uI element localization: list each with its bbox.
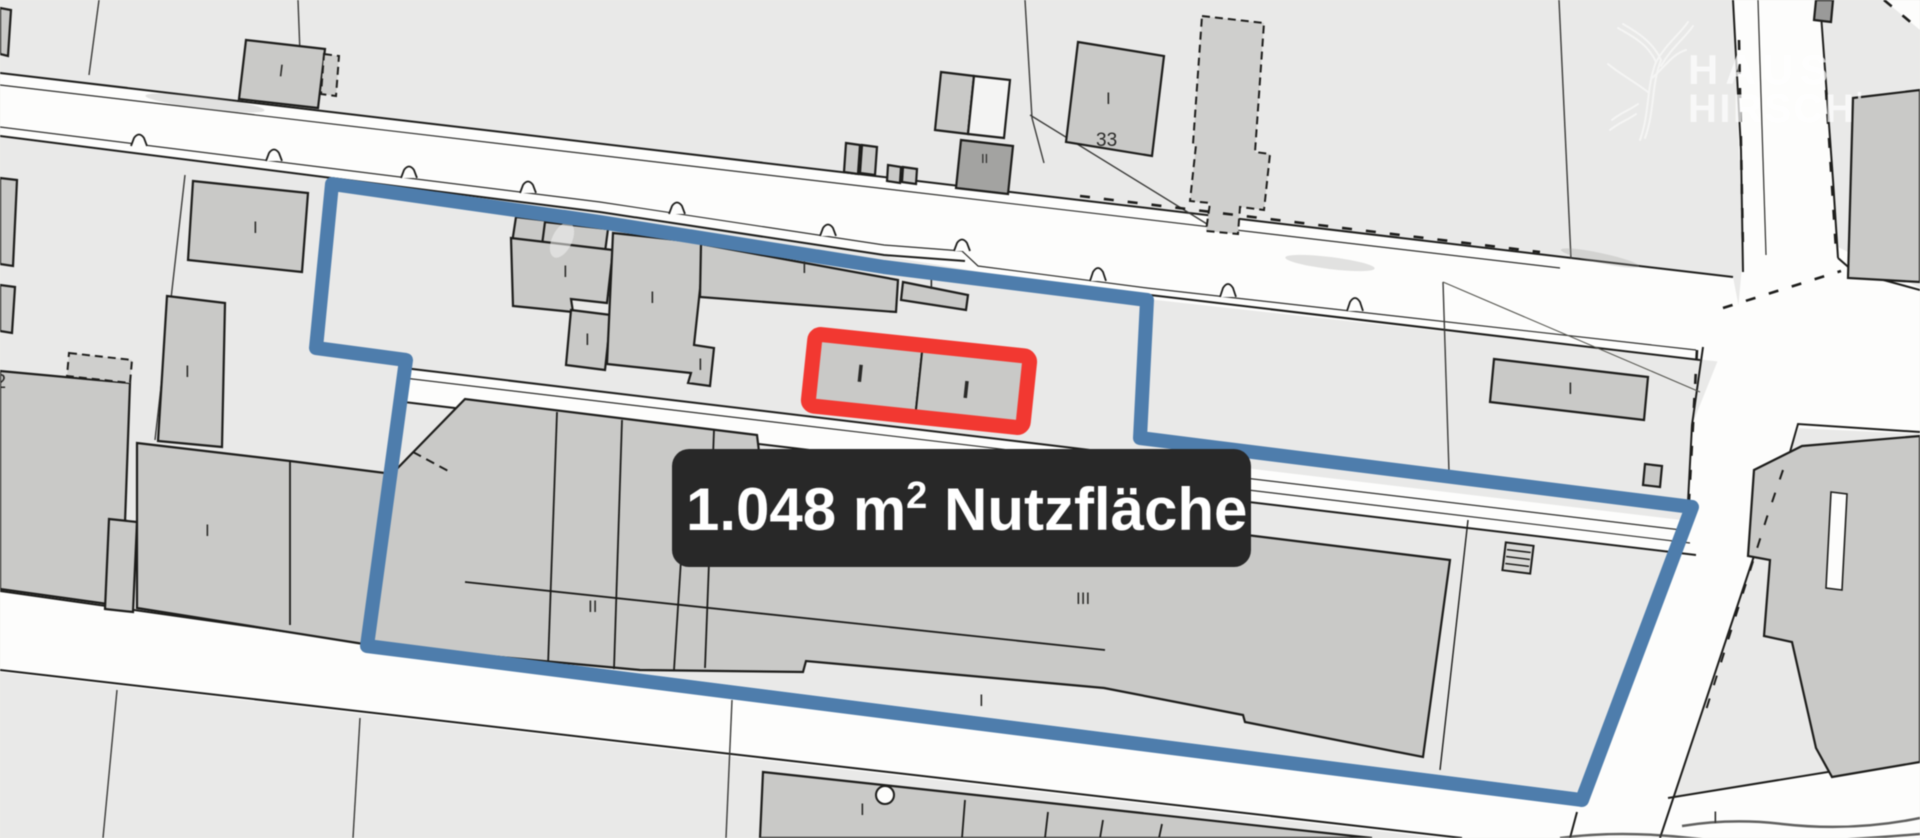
svg-text:HAUS: HAUS [1688,46,1835,93]
svg-text:I: I [563,262,568,281]
svg-text:II: II [588,597,597,616]
svg-text:HIRSCH': HIRSCH' [1688,86,1865,131]
svg-text:I: I [585,330,590,349]
svg-text:I: I [205,521,210,540]
svg-text:33: 33 [1096,130,1117,151]
svg-text:III: III [1076,589,1090,608]
svg-text:1.048 m2 Nutzfläche: 1.048 m2 Nutzfläche [686,475,1247,543]
svg-text:I: I [1568,379,1573,398]
svg-text:I: I [860,800,865,819]
svg-text:I: I [698,355,703,374]
svg-text:I: I [253,218,258,237]
svg-text:I: I [650,288,655,307]
svg-text:II: II [981,151,988,166]
svg-text:I: I [979,691,984,710]
svg-text:I: I [185,362,190,381]
svg-text:I: I [1106,89,1111,108]
svg-text:2: 2 [0,371,6,393]
svg-text:I: I [1713,808,1718,827]
